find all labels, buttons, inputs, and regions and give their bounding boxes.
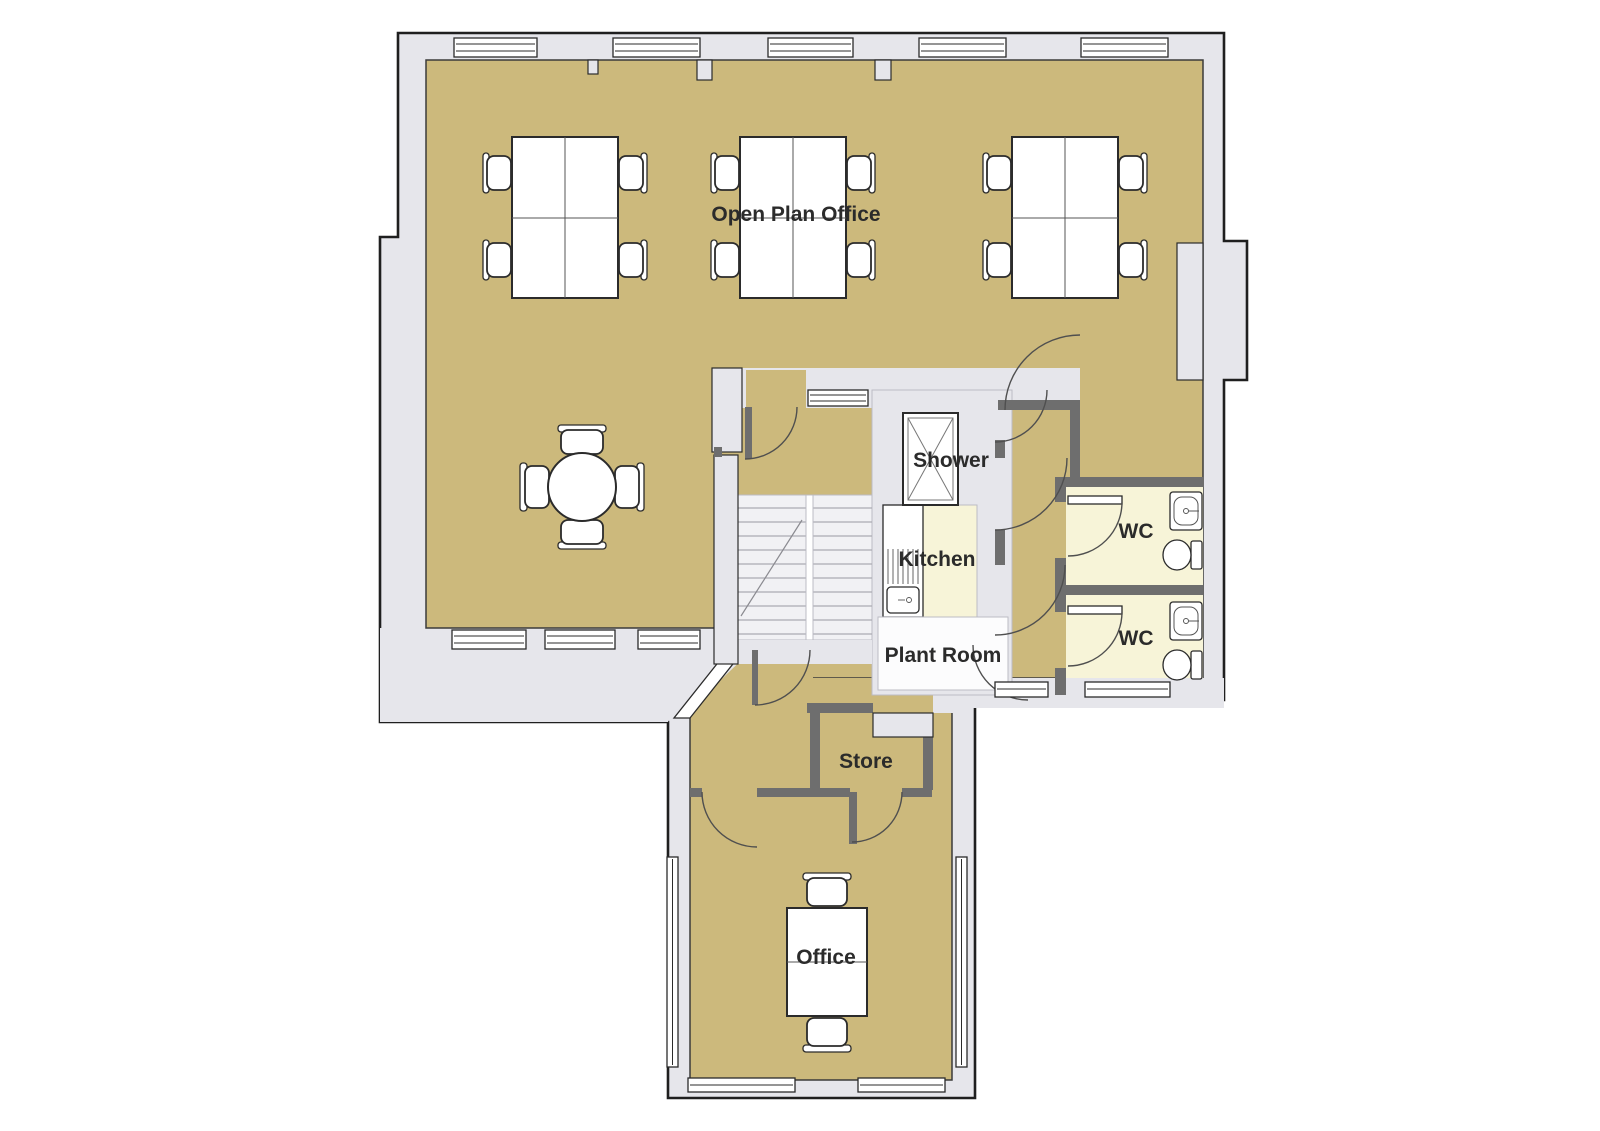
store-label: Store (839, 750, 893, 773)
window (1081, 38, 1168, 57)
lobby-door-opening (746, 370, 806, 408)
chair (558, 520, 606, 549)
window (545, 630, 615, 649)
chair (483, 240, 511, 280)
shower-label: Shower (913, 449, 989, 472)
store-left-wall (810, 703, 820, 790)
window (995, 682, 1048, 697)
plant-room-label: Plant Room (885, 644, 1002, 667)
wc-mid-wall (1066, 585, 1203, 595)
window (919, 38, 1006, 57)
window (858, 1078, 945, 1092)
store-right-wall (923, 733, 933, 790)
wall-pier-tab (697, 60, 712, 80)
window (688, 1078, 795, 1092)
toilet (1163, 650, 1202, 680)
chair (1119, 153, 1147, 193)
round-table (548, 453, 616, 521)
wall-pier-tab (875, 60, 891, 80)
chair (520, 463, 549, 511)
chair (558, 425, 606, 454)
chair (803, 1018, 851, 1052)
window (667, 857, 678, 1067)
wing-wall-seg-c (902, 788, 932, 797)
chair (483, 153, 511, 193)
wc-top-wall (1058, 477, 1204, 487)
open-plan-office-label: Open Plan Office (711, 203, 880, 226)
chair (711, 153, 739, 193)
chair (619, 240, 647, 280)
wc-top-door-leaf (1068, 496, 1122, 504)
chair (847, 240, 875, 280)
chair (615, 463, 644, 511)
chair (847, 153, 875, 193)
partition-stub-b (995, 530, 1005, 565)
toilet (1163, 540, 1202, 570)
wall-pier-tab (588, 60, 598, 74)
partition-core-top (998, 400, 1080, 410)
lobby-pier-lower (714, 455, 738, 664)
chair (619, 153, 647, 193)
partition-core-right (1070, 410, 1080, 477)
floor-plan-svg: Open Plan Office Shower Kitchen Plant Ro… (0, 0, 1600, 1131)
wc-block (1055, 477, 1204, 695)
wing-wall-seg-b (757, 788, 850, 797)
office-label: Office (796, 946, 856, 969)
chair (983, 240, 1011, 280)
partition-stub-a (995, 440, 1005, 458)
window (638, 630, 700, 649)
wc-bottom-label: WC (1119, 627, 1154, 650)
chair (711, 240, 739, 280)
right-wall-pier (1177, 243, 1203, 380)
office-door-leaf (849, 792, 857, 844)
chair (803, 873, 851, 906)
chair (983, 153, 1011, 193)
stair-floor (737, 495, 872, 640)
window (768, 38, 853, 57)
window (452, 630, 526, 649)
lobby-wall-stub (714, 447, 722, 457)
wc-left-wall-c (1055, 668, 1066, 695)
wc-bottom-door-leaf (1068, 606, 1122, 614)
window (613, 38, 700, 57)
lobby-pier-upper (712, 368, 742, 452)
wash-basin (1170, 602, 1202, 640)
wash-basin (1170, 492, 1202, 530)
staircase (737, 495, 872, 640)
floor-plan-page: Open Plan Office Shower Kitchen Plant Ro… (0, 0, 1600, 1131)
wing-wall-seg-a (690, 788, 702, 797)
window (454, 38, 537, 57)
lobby-door-leaf (745, 407, 752, 459)
store-duct-box (873, 713, 933, 737)
wing-entry-door-leaf (752, 650, 758, 705)
window (1085, 682, 1170, 697)
wc-top-label: WC (1119, 520, 1154, 543)
glazed-screen (808, 390, 868, 406)
window (956, 857, 967, 1067)
kitchen-label: Kitchen (898, 548, 975, 571)
stair-divider (806, 495, 813, 640)
chair (1119, 240, 1147, 280)
